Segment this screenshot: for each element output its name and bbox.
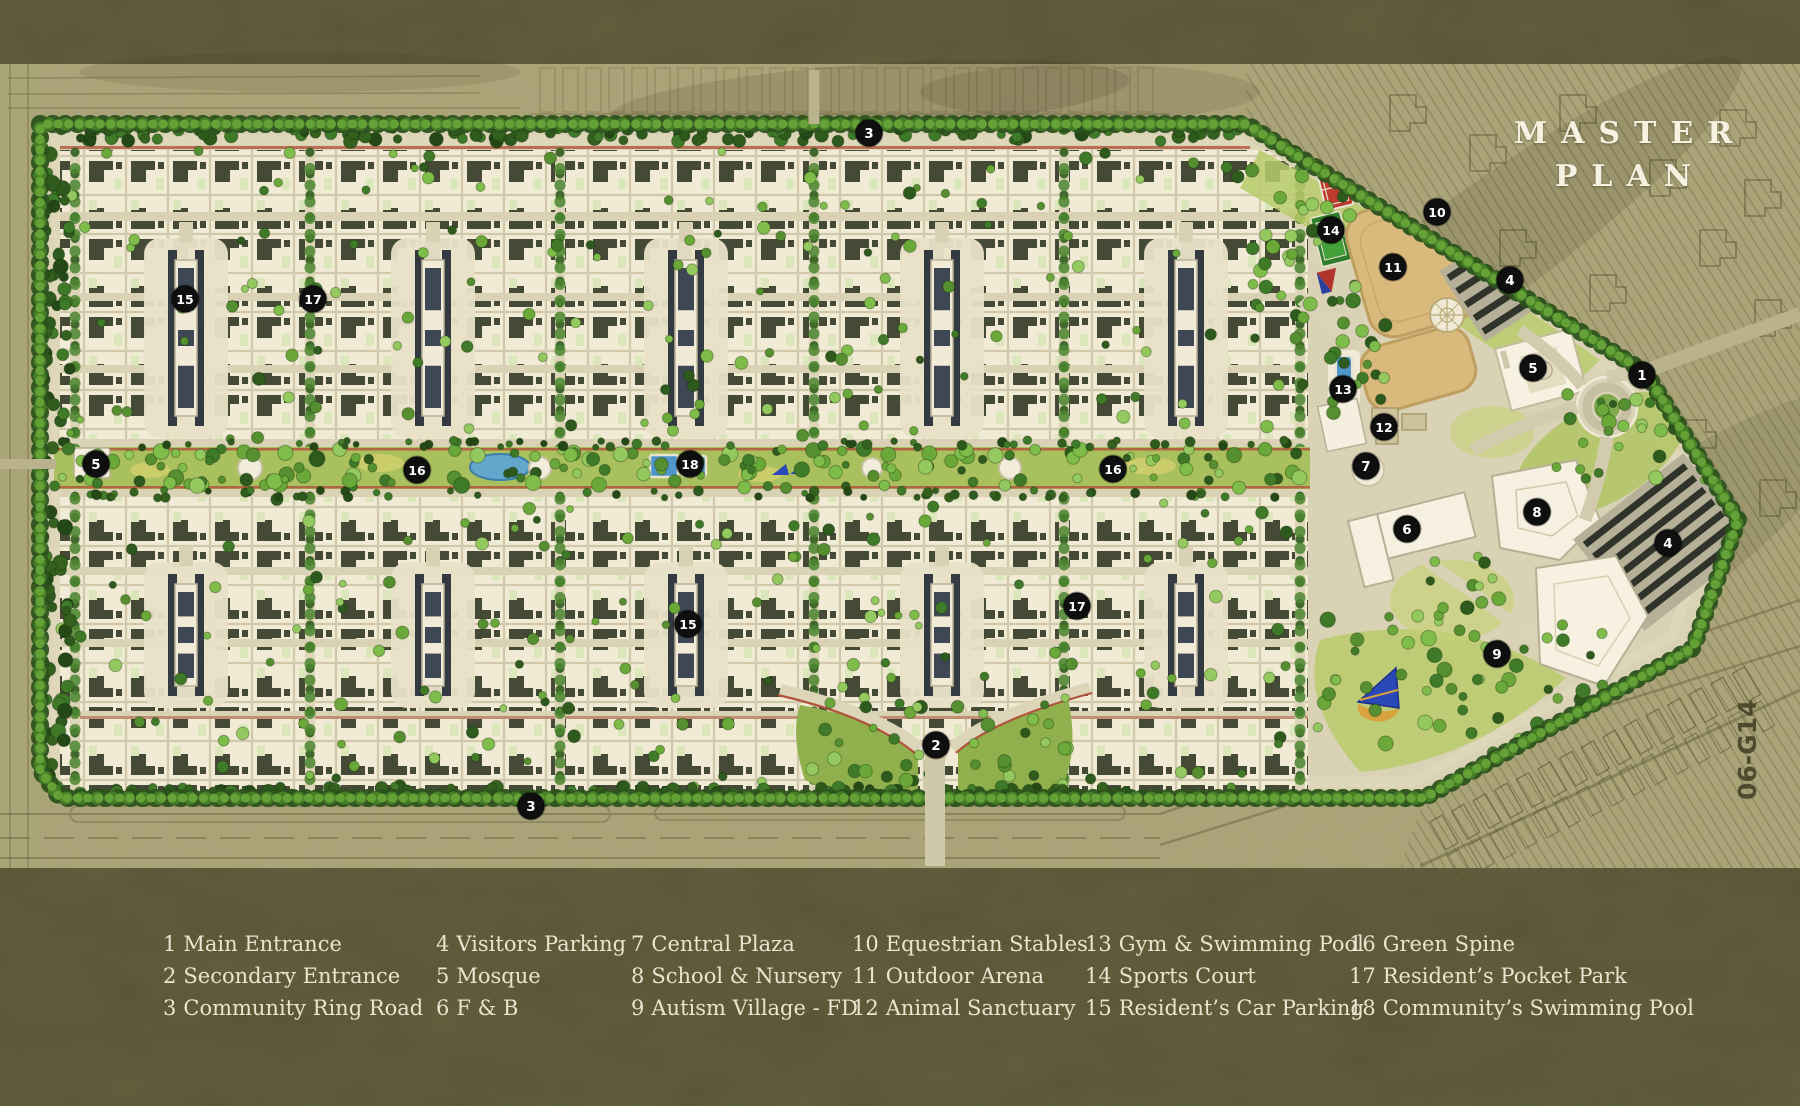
tree-icon: [387, 479, 395, 487]
tree-icon: [1204, 453, 1212, 461]
tree-icon: [1274, 191, 1287, 204]
tree-icon: [274, 178, 283, 187]
tree-icon: [664, 196, 673, 205]
tree-icon: [516, 438, 523, 445]
tree-icon: [1133, 326, 1141, 334]
tree-icon: [968, 477, 978, 487]
tree-icon: [76, 134, 84, 142]
tree-icon: [1185, 437, 1195, 447]
tree-icon: [1141, 347, 1151, 357]
tree-icon: [818, 543, 831, 556]
map-marker-16: 16: [404, 457, 431, 484]
tree-icon: [1557, 620, 1567, 630]
tree-icon: [560, 464, 568, 472]
map-marker-10: 10: [1424, 199, 1451, 226]
tree-icon: [1208, 558, 1218, 568]
map-marker-9: 9: [1484, 641, 1511, 668]
tree-icon: [571, 318, 581, 328]
tree-icon: [1496, 681, 1508, 693]
tree-icon: [843, 389, 853, 399]
tree-icon: [1379, 319, 1392, 332]
tree-icon: [1313, 723, 1322, 732]
tree-icon: [901, 759, 913, 771]
tree-icon: [898, 323, 908, 333]
tree-icon: [874, 386, 882, 394]
marker-number: 16: [1104, 462, 1122, 477]
tree-icon: [594, 132, 604, 142]
tree-icon: [669, 602, 680, 613]
tree-icon: [1594, 468, 1603, 477]
tree-icon: [758, 202, 768, 212]
compass-plaza: [1430, 298, 1464, 332]
legend-item-8: 8School & Nursery: [631, 966, 858, 987]
tree-icon: [1564, 412, 1576, 424]
solar-panel: [1178, 654, 1194, 678]
tree-icon: [970, 760, 980, 770]
tree-icon: [353, 441, 359, 447]
tree-icon: [1339, 358, 1350, 369]
tree-icon: [1479, 557, 1491, 569]
map-marker-17: 17: [300, 286, 327, 313]
marker-number: 3: [864, 126, 873, 142]
tree-icon: [878, 334, 888, 344]
tree-icon: [550, 459, 560, 469]
tree-icon: [984, 221, 991, 228]
solar-panel: [178, 366, 194, 408]
tree-icon: [936, 602, 948, 614]
tree-icon: [686, 264, 698, 276]
legend: 1Main Entrance 2Secondary Entrance 3Comm…: [0, 934, 1800, 1044]
tree-icon: [342, 443, 348, 449]
tree-icon: [466, 726, 478, 738]
tree-icon: [641, 419, 649, 427]
tree-icon: [881, 771, 892, 782]
tree-icon: [1346, 293, 1361, 308]
tree-icon: [61, 680, 74, 693]
tree-icon: [1303, 297, 1317, 311]
tree-icon: [109, 494, 115, 500]
legend-item-5: 5Mosque: [436, 966, 626, 987]
tree-icon: [819, 723, 832, 736]
legend-item-7: 7Central Plaza: [631, 934, 858, 955]
tree-icon: [1272, 623, 1284, 635]
tree-icon: [1542, 633, 1552, 643]
tree-icon: [619, 598, 626, 605]
tree-icon: [112, 406, 122, 416]
tree-icon: [899, 773, 913, 787]
tree-icon: [1351, 647, 1359, 655]
tree-icon: [310, 443, 318, 451]
tree-icon: [447, 488, 453, 494]
tree-icon: [205, 488, 211, 494]
tree-icon: [260, 186, 269, 195]
marker-number: 1: [1637, 368, 1646, 384]
tree-icon: [92, 490, 102, 500]
tree-icon: [1576, 684, 1591, 699]
tree-icon: [476, 183, 485, 192]
map-marker-4: 4: [1497, 267, 1524, 294]
tree-icon: [1378, 736, 1393, 751]
tree-icon: [1066, 658, 1078, 670]
tree-icon: [1086, 774, 1096, 784]
tree-icon: [478, 619, 488, 629]
tree-icon: [814, 456, 825, 467]
tree-icon: [364, 454, 374, 464]
tree-icon: [274, 305, 284, 315]
marker-number: 5: [91, 457, 100, 473]
marker-number: 9: [1492, 647, 1501, 663]
tree-icon: [922, 446, 937, 461]
tree-icon: [685, 235, 695, 245]
map-marker-5: 5: [83, 451, 110, 478]
tree-icon: [515, 660, 523, 668]
tree-icon: [418, 248, 428, 258]
tree-icon: [228, 439, 235, 446]
tree-icon: [1264, 672, 1275, 683]
map-marker-4: 4: [1655, 530, 1682, 557]
tree-icon: [538, 691, 546, 699]
tree-icon: [63, 614, 76, 627]
tree-icon: [1058, 439, 1067, 448]
tree-icon: [1113, 437, 1120, 444]
tree-icon: [1155, 136, 1166, 147]
tree-icon: [999, 480, 1011, 492]
tree-icon: [1298, 312, 1309, 323]
tree-icon: [765, 348, 774, 357]
tree-icon: [1136, 175, 1144, 183]
tree-icon: [373, 645, 384, 656]
tree-icon: [1147, 687, 1159, 699]
tree-icon: [310, 401, 322, 413]
solar-panel: [425, 268, 441, 310]
tree-icon: [524, 758, 531, 765]
marker-number: 7: [1361, 459, 1370, 475]
tree-icon: [880, 273, 890, 283]
tree-icon: [881, 447, 896, 462]
tree-icon: [952, 331, 959, 338]
tree-icon: [1021, 728, 1031, 738]
marker-number: 17: [1068, 599, 1085, 614]
tree-icon: [349, 761, 359, 771]
tree-icon: [867, 533, 880, 546]
tree-icon: [139, 444, 146, 451]
cluster-approach: [1179, 546, 1193, 566]
marker-number: 15: [176, 292, 193, 307]
tree-icon: [218, 735, 229, 746]
tree-icon: [980, 672, 989, 681]
tree-icon: [803, 242, 813, 252]
map-marker-15: 15: [675, 611, 702, 638]
tree-icon: [80, 222, 91, 233]
tree-icon: [1248, 441, 1255, 448]
tree-icon: [879, 480, 890, 491]
tree-icon: [1637, 424, 1646, 433]
legend-item-13: 13Gym & Swimming Pool: [1085, 934, 1364, 955]
tree-icon: [1187, 490, 1197, 500]
tree-icon: [429, 132, 443, 146]
tree-icon: [551, 239, 563, 251]
tree-icon: [175, 673, 187, 685]
tree-icon: [1581, 474, 1591, 484]
tree-icon: [991, 331, 1002, 342]
tree-icon: [189, 478, 205, 494]
tree-icon: [1578, 438, 1588, 448]
marker-number: 11: [1384, 260, 1401, 275]
tree-icon: [567, 506, 574, 513]
tree-icon: [1458, 705, 1468, 715]
tree-icon: [252, 432, 264, 444]
tree-icon: [829, 465, 842, 478]
tree-icon: [757, 288, 764, 295]
tree-icon: [990, 491, 997, 498]
tree-icon: [223, 541, 234, 552]
tree-icon: [643, 459, 651, 467]
tree-icon: [1044, 719, 1054, 729]
tree-icon: [163, 441, 171, 449]
tree-icon: [969, 491, 978, 500]
tree-icon: [988, 448, 1003, 463]
tree-icon: [1023, 436, 1032, 445]
map-marker-5: 5: [1520, 355, 1547, 382]
tree-icon: [1280, 526, 1293, 539]
tree-icon: [539, 541, 549, 551]
tree-icon: [278, 445, 293, 460]
tree-icon: [1615, 442, 1624, 451]
tree-icon: [823, 524, 835, 536]
tree-icon: [1227, 448, 1242, 463]
tree-icon: [1298, 379, 1309, 390]
tree-icon: [1520, 645, 1529, 654]
tree-icon: [1245, 164, 1258, 177]
tree-icon: [1285, 230, 1297, 242]
tree-icon: [58, 653, 73, 668]
tree-icon: [1509, 659, 1523, 673]
cluster-approach: [179, 546, 193, 566]
tree-icon: [1327, 296, 1337, 306]
tree-icon: [1201, 509, 1209, 517]
tree-icon: [656, 745, 665, 754]
tree-icon: [1175, 766, 1187, 778]
tree-icon: [57, 519, 72, 534]
tree-icon: [342, 473, 357, 488]
tree-icon: [1295, 169, 1309, 183]
tree-icon: [891, 438, 898, 445]
cluster-approach: [679, 546, 693, 566]
tree-icon: [706, 197, 714, 205]
marker-number: 3: [526, 799, 535, 815]
tree-icon: [1653, 450, 1666, 463]
tree-icon: [1041, 701, 1049, 709]
legend-item-15: 15Resident’s Car Parking: [1085, 998, 1364, 1019]
tree-icon: [871, 597, 879, 605]
tree-icon: [47, 398, 60, 411]
tree-icon: [1131, 488, 1140, 497]
solar-panel: [425, 330, 441, 346]
tree-icon: [897, 486, 906, 495]
tree-icon: [1422, 686, 1431, 695]
tree-icon: [1343, 209, 1357, 223]
tree-icon: [122, 134, 135, 147]
tree-icon: [969, 739, 978, 748]
tree-icon: [1351, 633, 1364, 646]
tree-icon: [1430, 674, 1443, 687]
tree-icon: [267, 474, 283, 490]
tree-icon: [1597, 404, 1609, 416]
tree-icon: [203, 696, 212, 705]
tree-icon: [389, 150, 397, 158]
marker-number: 15: [679, 617, 696, 632]
tree-icon: [1360, 682, 1372, 694]
legend-item-4: 4Visitors Parking: [436, 934, 626, 955]
tree-icon: [1150, 474, 1157, 481]
tree-icon: [915, 622, 922, 629]
marker-number: 6: [1402, 522, 1411, 538]
tree-icon: [293, 625, 301, 633]
tree-icon: [1046, 273, 1054, 281]
tree-icon: [1654, 424, 1667, 437]
tree-icon: [471, 753, 479, 761]
tree-icon: [1045, 495, 1051, 501]
tree-icon: [665, 335, 673, 343]
tree-icon: [863, 440, 873, 450]
tree-icon: [780, 482, 791, 493]
tree-icon: [861, 494, 867, 500]
legend-column-2: 4Visitors Parking 5Mosque 6F & B: [436, 934, 626, 1019]
tree-icon: [1072, 261, 1084, 273]
tree-icon: [1204, 668, 1217, 681]
tree-icon: [1178, 538, 1188, 548]
tree-icon: [383, 576, 395, 588]
marker-number: 2: [931, 738, 940, 754]
tree-icon: [195, 449, 206, 460]
tree-icon: [151, 718, 159, 726]
tree-icon: [1117, 410, 1130, 423]
tree-icon: [1258, 442, 1272, 456]
tree-icon: [748, 466, 756, 474]
tree-icon: [1012, 132, 1022, 142]
tree-icon: [828, 752, 842, 766]
tree-icon: [102, 148, 112, 158]
tree-icon: [482, 738, 494, 750]
tree-icon: [498, 444, 504, 450]
cluster-approach: [935, 546, 949, 566]
tree-icon: [1130, 465, 1137, 472]
tree-icon: [508, 467, 518, 477]
tree-icon: [1327, 406, 1341, 420]
tree-icon: [1493, 712, 1504, 723]
tree-icon: [637, 467, 651, 481]
solar-panel: [1178, 627, 1194, 643]
tree-icon: [316, 486, 324, 494]
tree-icon: [573, 469, 582, 478]
tree-icon: [454, 477, 470, 493]
tree-icon: [562, 550, 571, 559]
tree-icon: [1073, 474, 1082, 483]
tree-icon: [1141, 700, 1152, 711]
tree-icon: [252, 372, 265, 385]
tree-icon: [1618, 420, 1629, 431]
tree-icon: [1259, 280, 1273, 294]
tree-icon: [1014, 474, 1027, 487]
tree-icon: [294, 463, 304, 473]
tree-icon: [510, 449, 519, 458]
tree-icon: [606, 442, 615, 451]
tree-icon: [140, 134, 150, 144]
tree-icon: [1446, 683, 1457, 694]
tree-icon: [881, 658, 890, 667]
tree-icon: [1597, 628, 1607, 638]
tree-icon: [677, 718, 689, 730]
tree-icon: [1232, 170, 1245, 183]
tree-icon: [544, 152, 556, 164]
marker-number: 16: [408, 463, 426, 478]
tree-icon: [1492, 592, 1506, 606]
tree-icon: [719, 455, 730, 466]
tree-icon: [449, 436, 458, 445]
tree-icon: [429, 753, 440, 764]
tree-icon: [1097, 394, 1108, 405]
tree-icon: [755, 493, 763, 501]
tree-icon: [583, 488, 592, 497]
tree-icon: [1041, 738, 1051, 748]
solar-panel: [425, 627, 441, 643]
map-marker-6: 6: [1394, 516, 1421, 543]
tree-icon: [1030, 487, 1037, 494]
tree-icon: [916, 356, 924, 364]
tree-icon: [835, 353, 847, 365]
tree-icon: [1475, 582, 1484, 591]
tree-icon: [960, 372, 968, 380]
tree-icon: [1188, 132, 1198, 142]
tree-icon: [864, 297, 875, 308]
legend-item-16: 16Green Spine: [1349, 934, 1694, 955]
tree-icon: [526, 475, 542, 491]
tree-icon: [1204, 476, 1213, 485]
tree-icon: [804, 172, 816, 184]
tree-icon: [204, 632, 211, 639]
tree-icon: [122, 407, 132, 417]
tree-icon: [1418, 715, 1433, 730]
tree-icon: [1004, 441, 1011, 448]
tree-icon: [661, 442, 669, 450]
tree-icon: [1271, 493, 1280, 502]
marker-number: 8: [1532, 505, 1541, 521]
tree-icon: [1179, 418, 1190, 429]
tree-icon: [1388, 625, 1398, 635]
tree-icon: [661, 385, 671, 395]
tree-icon: [394, 731, 406, 743]
tree-icon: [1273, 380, 1284, 391]
tree-icon: [1071, 440, 1080, 449]
tree-icon: [157, 462, 165, 470]
tree-icon: [978, 455, 986, 463]
tree-icon: [568, 730, 581, 743]
tree-icon: [586, 241, 595, 250]
tree-icon: [1159, 499, 1167, 507]
tree-icon: [1265, 473, 1277, 485]
tree-icon: [349, 240, 358, 249]
map-marker-3: 3: [856, 120, 883, 147]
tree-icon: [194, 146, 203, 155]
legend-item-14: 14Sports Court: [1085, 966, 1364, 987]
title-line-2: PLAN: [1492, 155, 1768, 198]
tree-icon: [458, 134, 468, 144]
legend-item-1: 1Main Entrance: [163, 934, 423, 955]
tree-icon: [217, 761, 229, 773]
tree-icon: [1136, 669, 1145, 678]
tree-icon: [420, 443, 428, 451]
tree-icon: [1426, 577, 1435, 586]
